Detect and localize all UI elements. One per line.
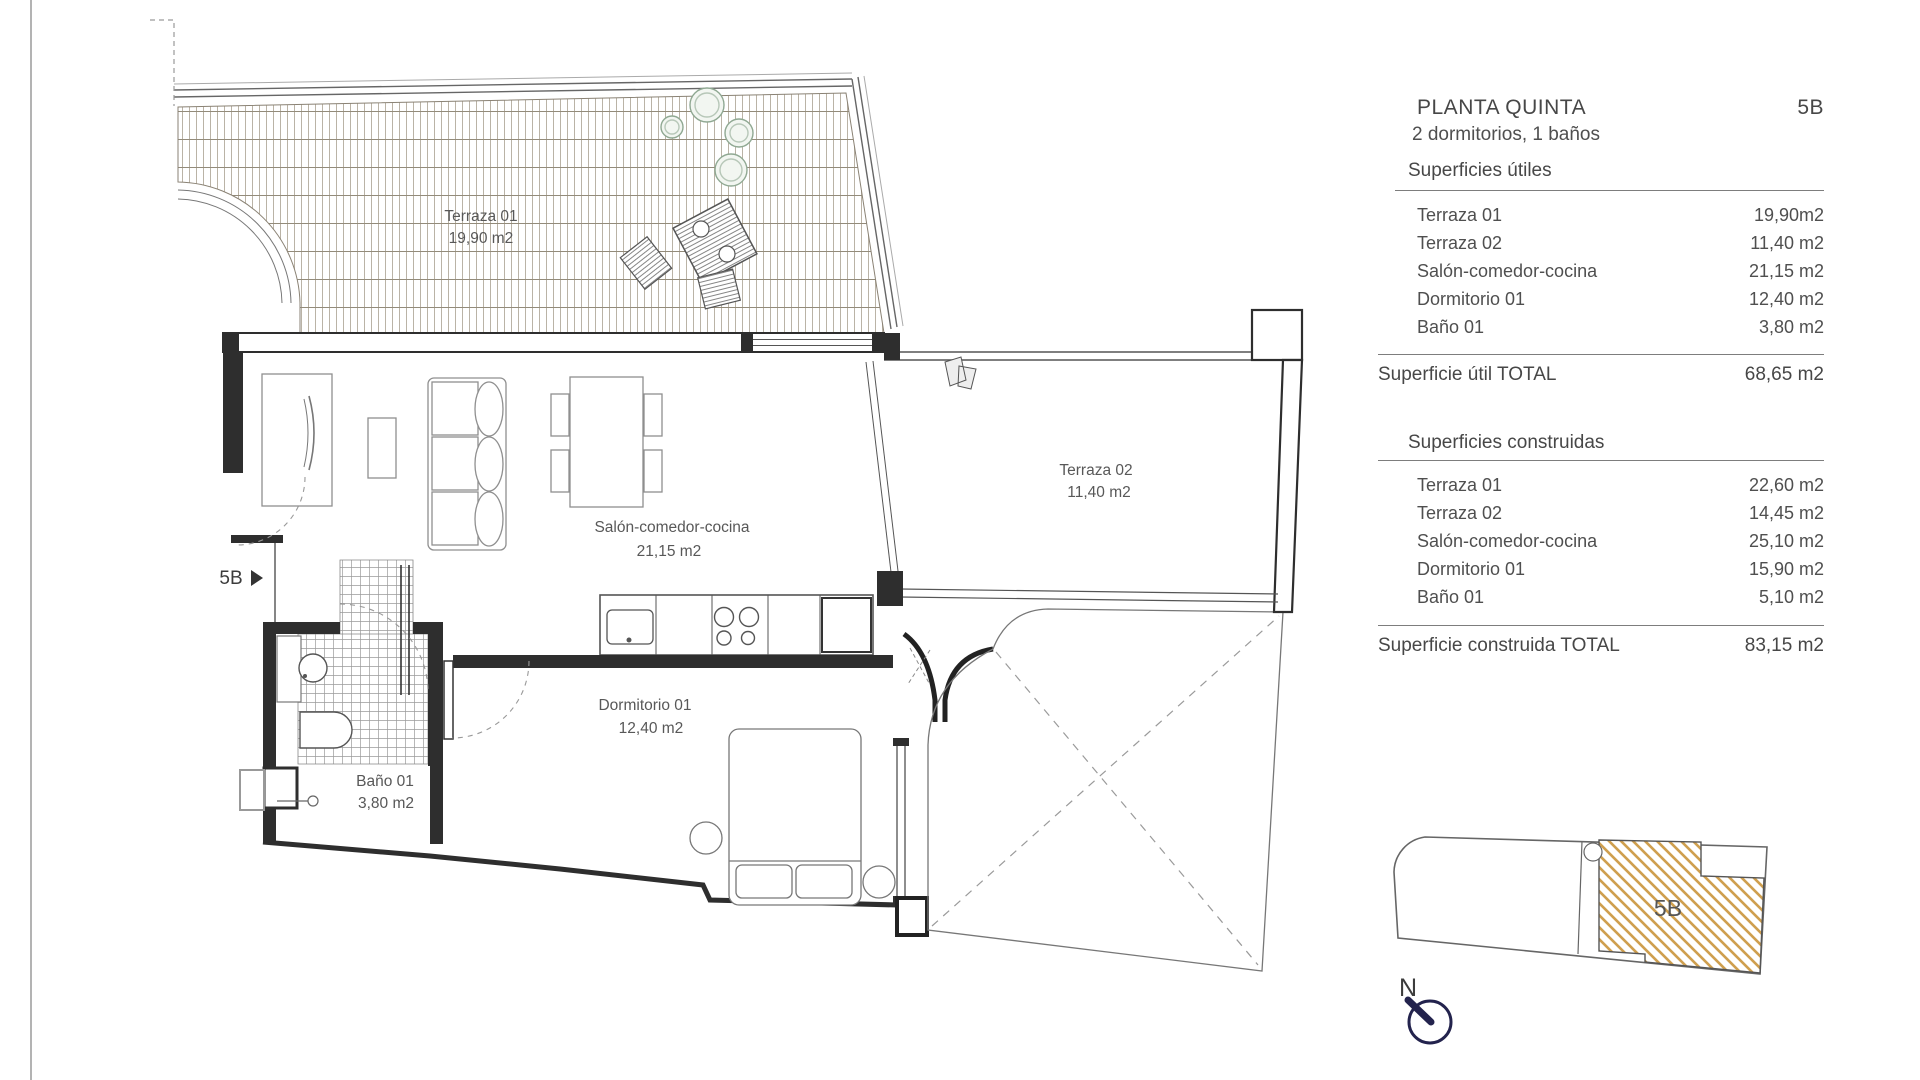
row-label: Baño 01 — [1417, 587, 1484, 608]
table-row: Terraza 01 19,90m2 — [1378, 201, 1824, 229]
unit-entry-marker: 5B — [219, 568, 263, 589]
table-row: Baño 01 3,80 m2 — [1378, 313, 1824, 341]
terraza-01 — [150, 20, 903, 333]
row-label: Terraza 01 — [1417, 475, 1502, 496]
divider — [1378, 460, 1824, 461]
table-row: Terraza 02 14,45 m2 — [1378, 499, 1824, 527]
useful-surfaces-table: Terraza 01 19,90m2 Terraza 02 11,40 m2 S… — [1378, 201, 1824, 341]
row-value: 21,15 m2 — [1749, 261, 1824, 282]
curved-wall — [904, 634, 993, 722]
surfaces-panel: PLANTA QUINTA 5B 2 dormitorios, 1 baños … — [1378, 0, 1824, 657]
table-row: Baño 01 5,10 m2 — [1378, 583, 1824, 611]
bedroom-door-swing — [452, 661, 529, 738]
media-unit — [262, 374, 332, 506]
door-leaf — [444, 661, 453, 739]
row-label: Baño 01 — [1417, 317, 1484, 338]
unit-code: 5B — [1797, 96, 1824, 120]
row-label: Terraza 01 — [1417, 205, 1502, 226]
total-label: Superficie útil TOTAL — [1378, 364, 1556, 386]
useful-total-row: Superficie útil TOTAL 68,65 m2 — [1378, 355, 1824, 386]
boundary-dashed-line — [150, 20, 174, 106]
bano-area: 3,80 m2 — [358, 795, 414, 812]
nightstand — [863, 866, 895, 898]
table-row: Salón-comedor-cocina 21,15 m2 — [1378, 257, 1824, 285]
row-label: Dormitorio 01 — [1417, 559, 1525, 580]
row-value: 5,10 m2 — [1759, 587, 1824, 608]
row-label: Dormitorio 01 — [1417, 289, 1525, 310]
table-row: Dormitorio 01 15,90 m2 — [1378, 555, 1824, 583]
built-surfaces-table: Terraza 01 22,60 m2 Terraza 02 14,45 m2 … — [1378, 471, 1824, 611]
drawing-sheet: Terraza 01 19,90 m2 Terraza 02 11,40 m2 … — [0, 0, 1920, 1080]
row-label: Terraza 02 — [1417, 233, 1502, 254]
terraza01-name: Terraza 01 — [444, 208, 517, 225]
open-roof-area — [928, 609, 1283, 971]
entry-door-swing — [237, 477, 305, 545]
row-value: 14,45 m2 — [1749, 503, 1824, 524]
total-value: 83,15 m2 — [1745, 635, 1824, 657]
north-arrow-icon: N — [1399, 974, 1451, 1043]
row-label: Terraza 02 — [1417, 503, 1502, 524]
washbasin-icon — [299, 654, 327, 682]
coffee-table — [368, 418, 396, 478]
page-title: PLANTA QUINTA — [1417, 96, 1586, 120]
kitchen-counter — [600, 595, 873, 655]
tv-icon — [309, 396, 314, 470]
bedroom-window — [893, 738, 909, 904]
row-label: Salón-comedor-cocina — [1417, 531, 1597, 552]
built-surfaces-heading: Superficies construidas — [1378, 432, 1824, 454]
entry-arrow-icon — [251, 570, 263, 586]
bathtub-icon — [300, 712, 352, 748]
terraza02-name: Terraza 02 — [1059, 462, 1132, 479]
divider — [1395, 190, 1824, 191]
deck-floor — [178, 93, 884, 333]
svg-text:5B: 5B — [219, 568, 242, 589]
row-label: Salón-comedor-cocina — [1417, 261, 1597, 282]
useful-surfaces-heading: Superficies útiles — [1378, 160, 1824, 182]
sofa — [428, 378, 506, 550]
terraza02-area: 11,40 m2 — [1067, 484, 1130, 501]
keyplan-unit-label: 5B — [1654, 895, 1682, 921]
row-value: 15,90 m2 — [1749, 559, 1824, 580]
terraza01-area: 19,90 m2 — [449, 230, 514, 247]
salon-name: Salón-comedor-cocina — [594, 519, 749, 536]
table-row: Salón-comedor-cocina 25,10 m2 — [1378, 527, 1824, 555]
dining-set — [551, 377, 662, 507]
row-value: 11,40 m2 — [1750, 233, 1824, 254]
fridge-icon — [822, 598, 871, 652]
table-row: Terraza 01 22,60 m2 — [1378, 471, 1824, 499]
total-label: Superficie construida TOTAL — [1378, 635, 1620, 657]
row-value: 3,80 m2 — [1759, 317, 1824, 338]
bano-name: Baño 01 — [356, 773, 414, 790]
dormitorio-name: Dormitorio 01 — [598, 697, 691, 714]
dormitorio-area: 12,40 m2 — [619, 720, 684, 737]
row-value: 19,90m2 — [1754, 205, 1824, 226]
unit-subtitle: 2 dormitorios, 1 baños — [1378, 124, 1824, 146]
row-value: 12,40 m2 — [1749, 289, 1824, 310]
total-value: 68,65 m2 — [1745, 364, 1824, 386]
terraza-02 — [866, 310, 1302, 612]
table-row: Terraza 02 11,40 m2 — [1378, 229, 1824, 257]
row-value: 22,60 m2 — [1749, 475, 1824, 496]
bed-icon — [729, 729, 861, 905]
built-total-row: Superficie construida TOTAL 83,15 m2 — [1378, 626, 1824, 657]
terrace-object — [945, 357, 976, 389]
key-plan: 5B — [1394, 837, 1767, 974]
table-row: Dormitorio 01 12,40 m2 — [1378, 285, 1824, 313]
row-value: 25,10 m2 — [1749, 531, 1824, 552]
vanity — [277, 636, 301, 702]
nightstand — [690, 822, 722, 854]
salon-area: 21,15 m2 — [637, 543, 702, 560]
